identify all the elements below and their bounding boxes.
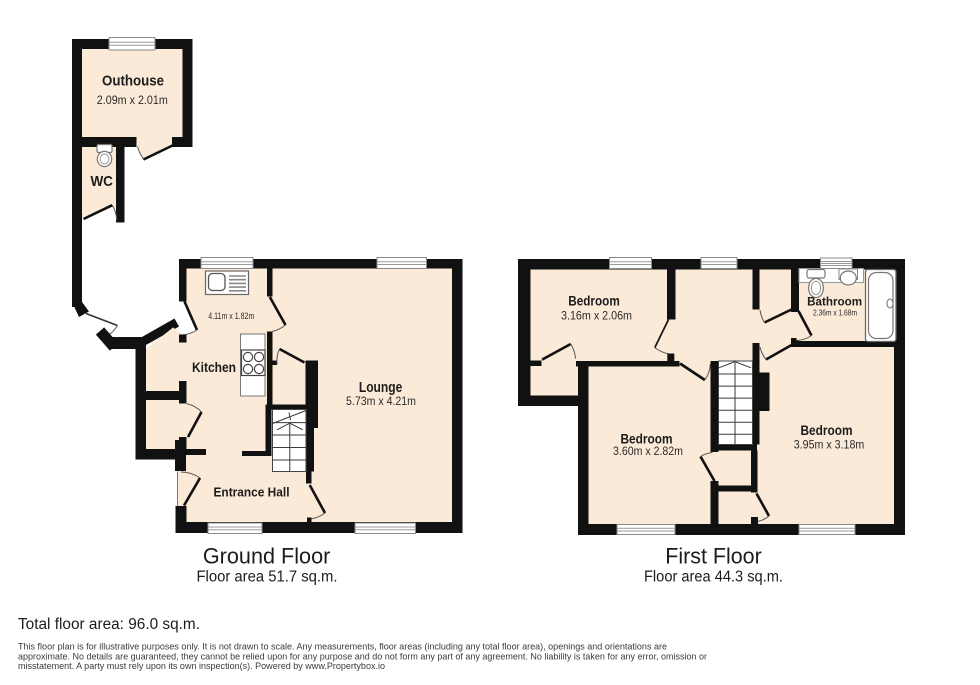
svg-text:2.09m x 2.01m: 2.09m x 2.01m <box>97 95 168 107</box>
svg-text:Outhouse: Outhouse <box>102 73 164 90</box>
svg-text:Entrance Hall: Entrance Hall <box>214 484 290 499</box>
svg-text:Kitchen: Kitchen <box>192 359 236 375</box>
svg-text:Floor area 51.7 sq.m.: Floor area 51.7 sq.m. <box>197 569 338 586</box>
svg-text:Ground Floor: Ground Floor <box>203 544 331 569</box>
svg-text:WC: WC <box>90 173 113 190</box>
svg-text:3.60m x 2.82m: 3.60m x 2.82m <box>613 444 683 458</box>
svg-text:2.36m x 1.68m: 2.36m x 1.68m <box>813 308 857 318</box>
svg-text:Total floor area: 96.0 sq.m.: Total floor area: 96.0 sq.m. <box>18 616 200 633</box>
svg-text:3.95m x 3.18m: 3.95m x 3.18m <box>794 438 865 452</box>
svg-text:misstatement. A party must rel: misstatement. A party must rely upon its… <box>18 661 385 672</box>
svg-text:3.16m x 2.06m: 3.16m x 2.06m <box>561 308 632 322</box>
svg-text:Floor area 44.3 sq.m.: Floor area 44.3 sq.m. <box>644 569 783 586</box>
svg-text:Bedroom: Bedroom <box>801 422 853 438</box>
svg-text:4.11m x 1.82m: 4.11m x 1.82m <box>208 310 254 321</box>
svg-text:5.73m x 4.21m: 5.73m x 4.21m <box>346 394 416 408</box>
svg-text:First Floor: First Floor <box>665 544 762 569</box>
svg-text:Bedroom: Bedroom <box>568 293 620 309</box>
svg-text:Bathroom: Bathroom <box>807 295 862 309</box>
